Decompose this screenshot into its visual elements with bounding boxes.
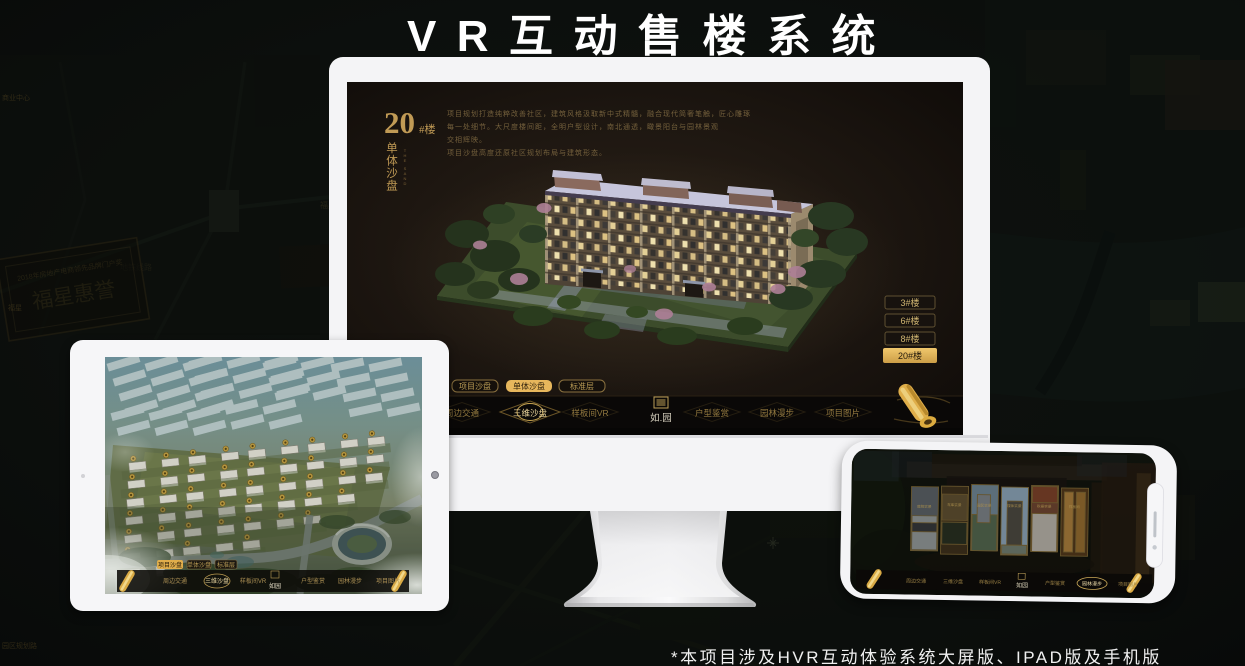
svg-text:8#楼: 8#楼 [900, 333, 919, 344]
svg-text:每一处细节。大尺度楼间距，全明户型设计，南北通透，瞰景阳台与: 每一处细节。大尺度楼间距，全明户型设计，南北通透，瞰景阳台与园林景观 [447, 122, 719, 131]
svg-text:单: 单 [386, 142, 398, 155]
svg-text:园林漫步: 园林漫步 [1082, 580, 1102, 587]
svg-text:20: 20 [384, 105, 415, 140]
svg-text:如园: 如园 [269, 582, 281, 590]
svg-text:项目图片: 项目图片 [826, 408, 860, 418]
svg-text:园林漫步: 园林漫步 [760, 408, 794, 418]
svg-text:20#楼: 20#楼 [898, 350, 922, 361]
svg-text:盘: 盘 [386, 179, 398, 193]
svg-text:交相辉映。: 交相辉映。 [447, 135, 487, 144]
svg-text:沙: 沙 [386, 167, 398, 180]
svg-text:样板间VR: 样板间VR [240, 577, 267, 585]
svg-text:E: E [404, 158, 407, 163]
svg-text:项目沙盘高度还原社区规划布局与建筑形态。: 项目沙盘高度还原社区规划布局与建筑形态。 [447, 148, 607, 157]
svg-text:商业中心: 商业中心 [2, 93, 30, 102]
svg-text:三维沙盘: 三维沙盘 [205, 577, 229, 585]
svg-text:6#楼: 6#楼 [900, 315, 919, 326]
svg-text:样板间VR: 样板间VR [571, 408, 608, 418]
svg-text:如园: 如园 [1016, 581, 1028, 589]
svg-text:项目图片: 项目图片 [1118, 581, 1138, 588]
svg-text:户型鉴赏: 户型鉴赏 [695, 408, 729, 418]
svg-text:标准层: 标准层 [570, 381, 594, 391]
svg-text:#楼: #楼 [419, 122, 436, 136]
svg-text:周边交通: 周边交通 [163, 577, 187, 585]
svg-text:周边交通: 周边交通 [906, 577, 926, 584]
svg-text:户型鉴赏: 户型鉴赏 [1045, 580, 1065, 587]
svg-text:项目图片: 项目图片 [376, 577, 400, 585]
svg-text:园区规划路: 园区规划路 [2, 641, 37, 650]
svg-text:三维沙盘: 三维沙盘 [943, 578, 963, 585]
svg-text:园林漫步: 园林漫步 [338, 577, 362, 585]
svg-text:体: 体 [386, 154, 398, 168]
svg-text:项目沙盘: 项目沙盘 [459, 381, 491, 391]
svg-text:项目沙盘: 项目沙盘 [158, 561, 182, 569]
svg-text:样板间VR: 样板间VR [979, 579, 1001, 586]
svg-text:户型鉴赏: 户型鉴赏 [301, 577, 325, 585]
svg-text:单体沙盘: 单体沙盘 [513, 381, 545, 391]
svg-text:三维沙盘: 三维沙盘 [513, 408, 548, 418]
svg-text:项目规划打造纯粹改善社区，建筑风格汲取新中式精髓，融合现代简: 项目规划打造纯粹改善社区，建筑风格汲取新中式精髓，融合现代简奢笔触，匠心雕琢 [447, 109, 751, 118]
svg-text:D: D [404, 181, 407, 186]
svg-text:单体沙盘: 单体沙盘 [187, 561, 211, 569]
svg-text:福星: 福星 [8, 303, 22, 312]
svg-text:如.园: 如.园 [650, 412, 672, 424]
svg-text:3#楼: 3#楼 [900, 297, 919, 308]
svg-text:标准层: 标准层 [217, 561, 235, 569]
svg-text:周边交通: 周边交通 [445, 408, 480, 418]
